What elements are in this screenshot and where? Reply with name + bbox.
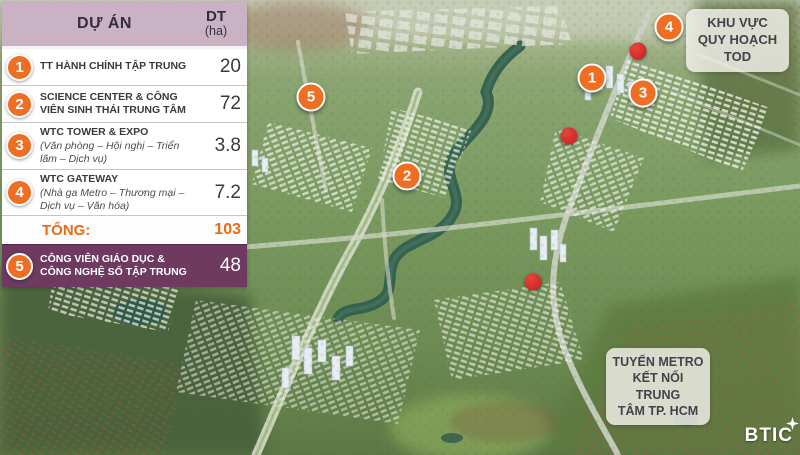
marker-number: 2 <box>403 168 411 185</box>
table-body: 1 TT HÀNH CHÍNH TẬP TRUNG 20 2 SCIENCE C… <box>2 49 247 287</box>
marker-number: 3 <box>639 85 647 102</box>
sparkle-icon <box>786 417 799 430</box>
area-value: 72 <box>197 93 243 115</box>
tod-label-line: KHU VỰC <box>690 15 785 32</box>
header-project: DỰ ÁN <box>2 15 189 33</box>
table-row-2: 2 SCIENCE CENTER & CÔNG VIÊN SINH THÁI T… <box>2 85 247 122</box>
project-name: WTC GATEWAY <box>40 173 197 186</box>
marker-number: 4 <box>665 19 673 36</box>
marker-number: 5 <box>307 89 315 106</box>
header-area-unit-sub: (ha) <box>189 25 243 39</box>
header-area-unit: DT <box>189 9 243 26</box>
tod-label-line: QUY HOẠCH <box>690 32 785 49</box>
project-name: CÔNG VIÊN GIÁO DỤC & CÔNG NGHỆ SỐ TẬP TR… <box>40 253 197 279</box>
project-description: (Nhà ga Metro – Thương mại – Dịch vụ – V… <box>40 187 197 213</box>
tod-label-line: TOD <box>690 49 785 66</box>
row-name-cell: SCIENCE CENTER & CÔNG VIÊN SINH THÁI TRU… <box>40 91 197 117</box>
project-table: DỰ ÁN DT (ha) 1 TT HÀNH CHÍNH TẬP TRUNG … <box>2 2 247 287</box>
total-value: 103 <box>197 221 243 239</box>
row-name-cell: WTC TOWER & EXPO (Văn phòng – Hội nghị –… <box>40 126 197 166</box>
metro-label-line: TÂM TP. HCM <box>610 403 706 419</box>
header-area: DT (ha) <box>189 9 247 39</box>
table-row-4: 4 WTC GATEWAY (Nhà ga Metro – Thương mại… <box>2 169 247 216</box>
map-marker-1: 1 <box>578 64 607 93</box>
map-marker-4: 4 <box>655 13 684 42</box>
row-name-cell: WTC GATEWAY (Nhà ga Metro – Thương mại –… <box>40 173 197 213</box>
table-row-3: 3 WTC TOWER & EXPO (Văn phòng – Hội nghị… <box>2 122 247 169</box>
marker-number: 1 <box>588 70 596 87</box>
row-number-badge: 3 <box>6 132 33 159</box>
area-value: 20 <box>197 56 243 78</box>
total-label: TỔNG: <box>42 222 197 239</box>
map-marker-3: 3 <box>629 79 658 108</box>
row-name-cell: TT HÀNH CHÍNH TẬP TRUNG <box>40 60 197 73</box>
tod-area-label: KHU VỰC QUY HOẠCH TOD <box>686 9 789 72</box>
project-name: SCIENCE CENTER & CÔNG VIÊN SINH THÁI TRU… <box>40 91 197 117</box>
area-value: 7.2 <box>197 182 243 204</box>
metro-station-dot <box>561 128 578 145</box>
project-name: TT HÀNH CHÍNH TẬP TRUNG <box>40 60 197 73</box>
area-value: 3.8 <box>197 135 243 157</box>
area-value: 48 <box>197 255 243 277</box>
table-row-1: 1 TT HÀNH CHÍNH TẬP TRUNG 20 <box>2 49 247 85</box>
metro-line-label: TUYẾN METRO KẾT NỐI TRUNG TÂM TP. HCM <box>606 348 710 425</box>
metro-station-dot <box>630 43 647 60</box>
map-marker-5: 5 <box>297 83 326 112</box>
row-number-badge: 1 <box>6 54 33 81</box>
row-number-badge: 2 <box>6 91 33 118</box>
masterplan-slide: 1 2 3 4 5 KHU VỰC QUY HOẠCH TOD TUYẾN ME… <box>0 0 800 455</box>
btic-logo: BTIC <box>745 425 793 447</box>
table-total-row: TỔNG: 103 <box>2 215 247 244</box>
metro-station-dot <box>525 274 542 291</box>
map-marker-2: 2 <box>393 162 422 191</box>
row-number-badge: 5 <box>6 253 33 280</box>
project-description: (Văn phòng – Hội nghị – Triển lãm – Dịch… <box>40 140 197 166</box>
table-header: DỰ ÁN DT (ha) <box>2 2 247 49</box>
row-name-cell: CÔNG VIÊN GIÁO DỤC & CÔNG NGHỆ SỐ TẬP TR… <box>40 253 197 279</box>
project-name: WTC TOWER & EXPO <box>40 126 197 139</box>
table-row-5: 5 CÔNG VIÊN GIÁO DỤC & CÔNG NGHỆ SỐ TẬP … <box>2 244 247 287</box>
metro-label-line: TUYẾN METRO <box>610 354 706 370</box>
metro-label-line: KẾT NỐI TRUNG <box>610 370 706 403</box>
row-number-badge: 4 <box>6 179 33 206</box>
